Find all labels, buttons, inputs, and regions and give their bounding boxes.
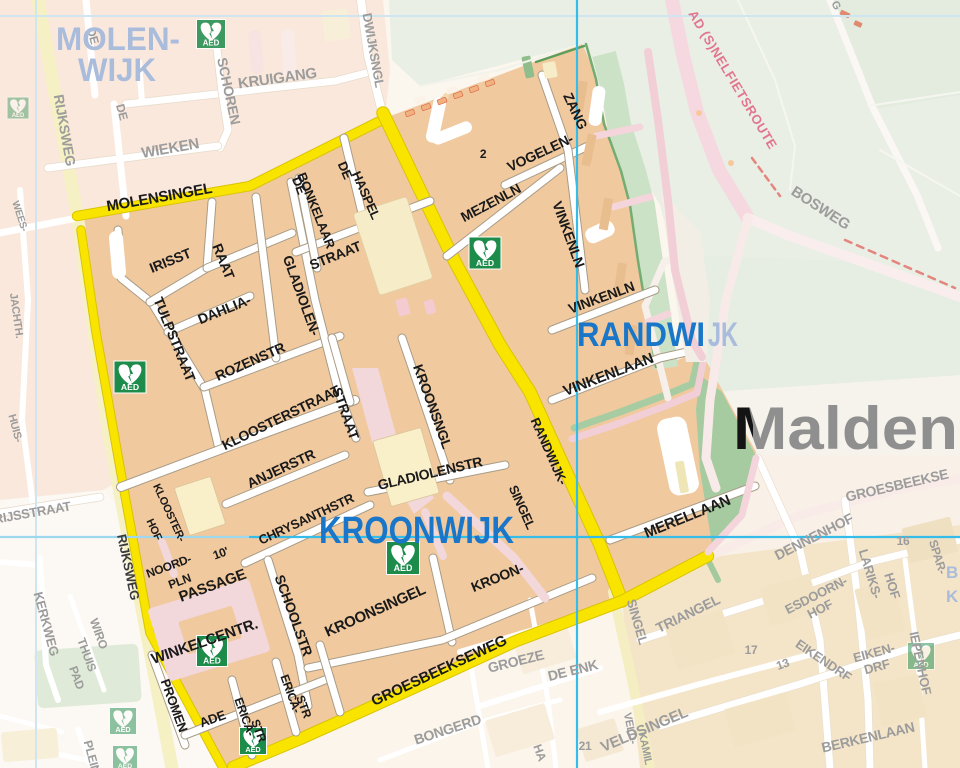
svg-text:K: K <box>946 587 959 606</box>
svg-text:17: 17 <box>745 643 758 657</box>
svg-text:AED: AED <box>476 258 494 268</box>
svg-text:AED: AED <box>118 763 132 768</box>
svg-text:JK: JK <box>708 316 738 354</box>
svg-text:AED: AED <box>12 113 25 119</box>
svg-text:WIJK: WIJK <box>78 52 156 88</box>
svg-text:Malden: Malden <box>733 395 958 462</box>
svg-text:2: 2 <box>480 147 487 161</box>
svg-text:AED: AED <box>121 382 139 392</box>
svg-text:KROONWIJK: KROONWIJK <box>319 510 514 552</box>
svg-text:AED: AED <box>115 725 130 734</box>
svg-text:21: 21 <box>579 739 592 753</box>
svg-text:AED: AED <box>245 745 260 754</box>
svg-text:B: B <box>946 563 958 582</box>
svg-text:AED: AED <box>203 655 221 665</box>
svg-text:16: 16 <box>897 534 910 548</box>
svg-text:AED: AED <box>203 39 220 48</box>
svg-text:AED: AED <box>394 563 413 573</box>
svg-text:RANDWI: RANDWI <box>577 316 705 354</box>
